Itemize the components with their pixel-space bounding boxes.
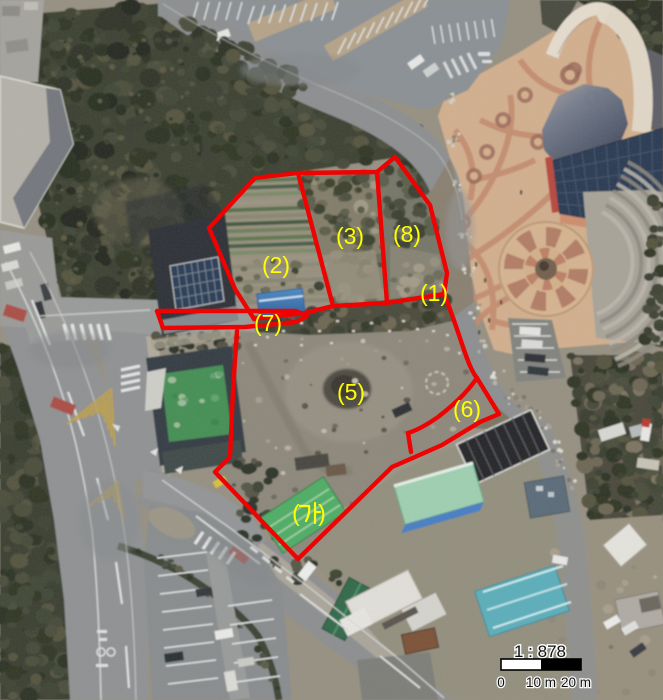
svg-text:(5): (5) [337,379,365,405]
svg-text:(1): (1) [420,280,448,306]
svg-text:1 : 878: 1 : 878 [514,642,566,661]
svg-text:(8): (8) [393,221,421,247]
svg-text:(: ( [292,500,300,526]
svg-text:(7): (7) [254,310,282,336]
svg-text:0: 0 [497,675,505,690]
svg-text:10 m: 10 m [526,675,556,690]
svg-text:(6): (6) [453,396,481,422]
svg-text:(2): (2) [262,252,290,278]
svg-text:(3): (3) [336,223,364,249]
svg-text:20 m: 20 m [561,675,591,690]
